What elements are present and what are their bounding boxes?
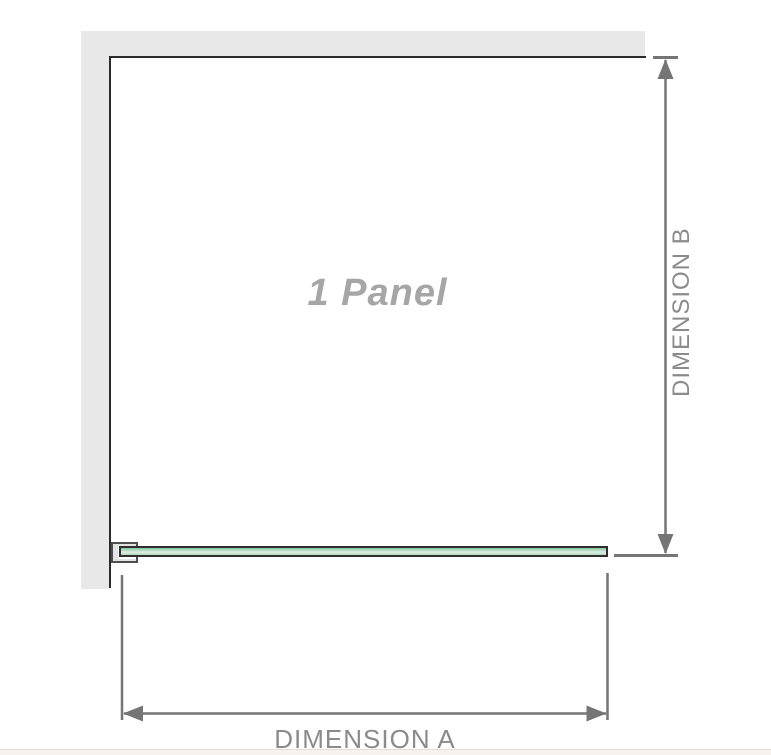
dim-a-arrow-left-icon [123,706,143,722]
panel-dimension-diagram: 1 Panel DIMENSION B DIMENSION A [0,0,771,755]
bottom-edge-strip [0,749,771,755]
dim-b-arrow-down-icon [658,534,674,554]
wall-top [81,31,645,57]
dim-a-arrow-right-icon [587,706,607,722]
panel-outline [109,56,646,588]
wall-left [81,31,109,589]
panel-label: 1 Panel [109,272,646,315]
dimension-b-label: DIMENSION B [668,237,696,397]
dim-b-arrow-up-icon [658,59,674,79]
glass-panel [119,546,608,557]
